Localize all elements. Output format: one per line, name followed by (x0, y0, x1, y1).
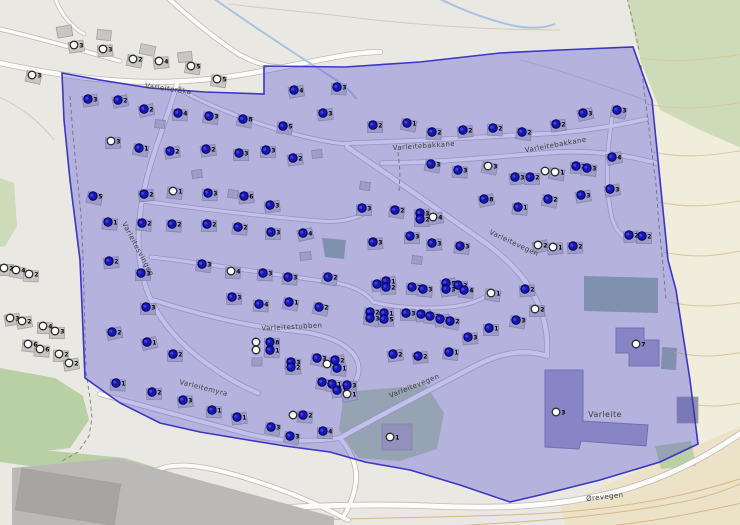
address-marker-selected[interactable]: 2 (638, 232, 652, 241)
marker-number: 4 (308, 230, 312, 237)
address-marker-selected[interactable]: 2 (552, 120, 566, 129)
marker-dot-highlight (136, 146, 139, 149)
address-marker-selected[interactable]: 8 (480, 195, 494, 204)
marker-dot-highlight (314, 356, 317, 359)
address-marker-selected[interactable]: 4 (460, 286, 474, 295)
marker-ring[interactable] (323, 360, 331, 368)
address-marker-selected[interactable]: 6 (240, 192, 254, 201)
address-marker[interactable]: 7 (632, 340, 645, 348)
address-marker-selected[interactable]: 3 (267, 423, 281, 432)
address-marker-selected[interactable]: 1 (266, 346, 280, 355)
address-marker-selected[interactable]: 2 (114, 96, 128, 105)
marker-dot-highlight (167, 149, 170, 152)
address-marker-selected[interactable]: 4 (255, 300, 269, 309)
address-marker-selected[interactable]: 2 (105, 257, 119, 266)
address-marker[interactable]: 3 (552, 408, 565, 416)
address-marker[interactable]: 1 (343, 390, 356, 398)
address-marker[interactable] (252, 346, 260, 354)
marker-number: 2 (530, 286, 534, 293)
address-marker-selected[interactable]: 3 (406, 232, 420, 241)
marker-dot-highlight (290, 156, 293, 159)
marker-ring[interactable] (39, 322, 47, 330)
marker-number: 2 (175, 148, 179, 155)
marker-ring[interactable] (541, 167, 549, 175)
marker-dot-highlight (626, 233, 629, 236)
marker-number: 3 (378, 239, 382, 246)
marker-number: 2 (308, 412, 312, 419)
address-marker[interactable]: 2 (129, 55, 142, 63)
address-marker-selected[interactable]: 2 (324, 273, 338, 282)
marker-ring[interactable] (534, 241, 542, 249)
marker-dot-highlight (236, 151, 239, 154)
address-marker-selected[interactable]: 3 (259, 269, 273, 278)
marker-number: 1 (523, 204, 527, 211)
address-marker-selected[interactable]: 2 (416, 215, 430, 224)
marker-number: 3 (615, 186, 619, 193)
marker-dot-highlight (113, 381, 116, 384)
address-marker-selected[interactable]: 2 (289, 154, 303, 163)
address-marker-selected[interactable]: 2 (234, 223, 248, 232)
marker-number: 2 (543, 242, 547, 249)
marker-ring[interactable] (252, 338, 260, 346)
marker-ring[interactable] (531, 305, 539, 313)
marker-dot-highlight (515, 205, 518, 208)
address-marker[interactable]: 4 (155, 57, 168, 65)
marker-dot-highlight (639, 234, 642, 237)
marker-ring[interactable] (28, 71, 36, 79)
marker-number: 7 (641, 341, 645, 348)
marker-ring[interactable] (632, 340, 640, 348)
address-marker-selected[interactable]: 3 (512, 316, 526, 325)
marker-dot-highlight (320, 429, 323, 432)
marker-ring[interactable] (70, 41, 78, 49)
marker-dot-highlight (427, 314, 430, 317)
marker-dot-highlight (287, 434, 290, 437)
address-marker-selected[interactable]: 3 (266, 201, 280, 210)
marker-number: 2 (455, 318, 459, 325)
address-marker-selected[interactable]: 2 (148, 388, 162, 397)
marker-dot-highlight (332, 358, 335, 361)
address-marker-selected[interactable]: 3 (402, 309, 416, 318)
marker-ring[interactable] (6, 314, 14, 322)
marker-number: 3 (37, 72, 41, 79)
address-marker-selected[interactable]: 3 (427, 160, 441, 169)
marker-ring[interactable] (487, 289, 495, 297)
address-marker[interactable]: 3 (99, 45, 112, 53)
marker-number: 3 (588, 110, 592, 117)
address-marker[interactable]: 3 (484, 162, 497, 170)
marker-dot-highlight (241, 194, 244, 197)
address-marker[interactable]: 3 (70, 41, 83, 49)
address-marker-selected[interactable]: 3 (228, 293, 242, 302)
marker-dot-highlight (580, 111, 583, 114)
address-marker-selected[interactable]: 2 (446, 317, 460, 326)
address-marker-selected[interactable]: 2 (108, 328, 122, 337)
marker-number: 3 (275, 202, 279, 209)
address-marker-selected[interactable]: 1 (333, 364, 347, 373)
marker-number: 4 (164, 58, 168, 65)
address-marker[interactable]: 2 (534, 241, 547, 249)
address-marker-selected[interactable]: 2 (166, 147, 180, 156)
marker-dot-highlight (429, 241, 432, 244)
marker-ring[interactable] (51, 327, 59, 335)
address-marker-selected[interactable]: 1 (104, 218, 118, 227)
marker-ring[interactable] (213, 75, 221, 83)
marker-dot-highlight (285, 275, 288, 278)
address-marker[interactable]: 4 (39, 322, 52, 330)
marker-number: 3 (244, 150, 248, 157)
address-marker-selected[interactable]: 8 (266, 338, 280, 347)
marker-dot-highlight (407, 234, 410, 237)
marker-number: 3 (521, 317, 525, 324)
address-marker-selected[interactable]: 3 (284, 273, 298, 282)
marker-number: 3 (473, 334, 477, 341)
address-marker-selected[interactable]: 5 (380, 315, 394, 324)
marker-number: 3 (586, 192, 590, 199)
marker-number: 3 (60, 328, 64, 335)
marker-dot-highlight (286, 300, 289, 303)
address-marker-selected[interactable]: 4 (608, 153, 622, 162)
address-marker-selected[interactable]: 3 (319, 109, 333, 118)
marker-dot-highlight (141, 192, 144, 195)
marker-number: 3 (295, 433, 299, 440)
marker-ring[interactable] (155, 57, 163, 65)
address-marker-selected[interactable]: 2 (391, 206, 405, 215)
marker-number: 1 (342, 365, 346, 372)
marker-number: 1 (113, 219, 117, 226)
address-marker[interactable]: 4 (429, 213, 442, 221)
marker-number: 2 (117, 329, 121, 336)
marker-number: 3 (293, 274, 297, 281)
address-marker-selected[interactable]: 8 (239, 115, 253, 124)
address-marker-selected[interactable]: 2 (625, 231, 639, 240)
address-marker-selected[interactable]: 2 (315, 303, 329, 312)
marker-dot-highlight (447, 319, 450, 322)
marker-dot-highlight (607, 187, 610, 190)
address-marker-selected[interactable]: 1 (112, 379, 126, 388)
address-marker-selected[interactable]: 3 (358, 204, 372, 213)
address-marker-selected[interactable]: 3 (84, 95, 98, 104)
marker-dot-highlight (267, 340, 270, 343)
address-marker[interactable]: 3 (28, 71, 41, 79)
address-marker-selected[interactable]: 3 (179, 396, 193, 405)
marker-number: 1 (454, 349, 458, 356)
marker-number: 1 (412, 120, 416, 127)
marker-dot-highlight (90, 194, 93, 197)
marker-ring[interactable] (386, 433, 394, 441)
address-marker[interactable]: 1 (549, 243, 562, 251)
marker-ring[interactable] (129, 55, 137, 63)
marker-dot-highlight (465, 335, 468, 338)
marker-number: 3 (214, 113, 218, 120)
address-marker[interactable]: 2 (65, 359, 78, 367)
marker-dot-highlight (374, 282, 377, 285)
marker-number: 4 (438, 214, 442, 221)
marker-dot-highlight (204, 222, 207, 225)
marker-ring[interactable] (36, 345, 44, 353)
marker-dot-highlight (288, 360, 291, 363)
marker-number: 2 (177, 221, 181, 228)
marker-ring[interactable] (99, 45, 107, 53)
address-marker[interactable]: 1 (169, 187, 182, 195)
marker-dot-highlight (383, 279, 386, 282)
address-marker-selected[interactable]: 2 (203, 220, 217, 229)
address-marker-selected[interactable]: 2 (287, 363, 301, 372)
address-marker[interactable]: 5 (213, 75, 226, 83)
address-marker-selected[interactable]: 2 (202, 145, 216, 154)
address-marker-selected[interactable]: 4 (174, 109, 188, 118)
marker-number: 1 (494, 325, 498, 332)
address-marker[interactable]: 6 (24, 340, 37, 348)
marker-number: 2 (296, 364, 300, 371)
address-marker-selected[interactable]: 3 (579, 109, 593, 118)
marker-dot-highlight (240, 117, 243, 120)
marker-number: 3 (367, 205, 371, 212)
marker-dot-highlight (457, 244, 460, 247)
marker-dot-highlight (437, 317, 440, 320)
address-marker-selected[interactable]: 3 (464, 333, 478, 342)
address-marker-selected[interactable]: 3 (583, 164, 597, 173)
address-marker-selected[interactable]: 2 (414, 352, 428, 361)
marker-dot-highlight (139, 221, 142, 224)
marker-dot-highlight (367, 316, 370, 319)
address-marker-selected[interactable]: 1 (233, 413, 247, 422)
address-marker-selected[interactable]: 3 (442, 285, 456, 294)
address-marker[interactable]: 3 (6, 314, 19, 322)
marker-number: 1 (242, 414, 246, 421)
address-marker-selected[interactable]: 4 (319, 427, 333, 436)
address-marker-selected[interactable]: 2 (428, 128, 442, 137)
address-marker-selected[interactable]: 3 (205, 112, 219, 121)
marker-number: 2 (437, 129, 441, 136)
address-marker-selected[interactable]: 2 (299, 411, 313, 420)
address-marker-selected[interactable]: 3 (267, 228, 281, 237)
address-marker[interactable]: 2 (55, 350, 68, 358)
marker-number: 3 (437, 240, 441, 247)
marker-dot-highlight (143, 305, 146, 308)
marker-ring[interactable] (18, 317, 26, 325)
marker-number: 2 (298, 155, 302, 162)
marker-dot-highlight (205, 191, 208, 194)
marker-ring[interactable] (24, 340, 32, 348)
address-marker-selected[interactable]: 2 (518, 128, 532, 137)
marker-ring[interactable] (0, 264, 8, 272)
marker-dot-highlight (512, 175, 515, 178)
address-marker-selected[interactable]: 2 (140, 190, 154, 199)
address-marker-selected[interactable]: 3 (204, 189, 218, 198)
address-marker-selected[interactable]: 2 (521, 285, 535, 294)
address-marker-selected[interactable]: 1 (135, 144, 149, 153)
address-marker-selected[interactable]: 3 (606, 185, 620, 194)
marker-dot-highlight (460, 128, 463, 131)
address-marker-selected[interactable]: 1 (445, 348, 459, 357)
marker-dot-highlight (446, 350, 449, 353)
marker-dot-highlight (519, 130, 522, 133)
building (56, 25, 73, 38)
marker-number: 1 (558, 244, 562, 251)
marker-number: 2 (211, 146, 215, 153)
marker-dot-highlight (553, 122, 556, 125)
marker-ring[interactable] (55, 350, 63, 358)
marker-ring[interactable] (429, 213, 437, 221)
marker-ring[interactable] (107, 137, 115, 145)
address-marker-selected[interactable]: 2 (168, 220, 182, 229)
marker-ring[interactable] (227, 267, 235, 275)
marker-dot-highlight (209, 408, 212, 411)
marker-dot-highlight (418, 312, 421, 315)
marker-number: 6 (45, 346, 49, 353)
address-marker-selected[interactable]: 1 (208, 406, 222, 415)
address-marker-selected[interactable]: 3 (286, 432, 300, 441)
marker-dot-highlight (455, 168, 458, 171)
marker-ring[interactable] (551, 168, 559, 176)
marker-number: 2 (324, 304, 328, 311)
marker-number: 2 (157, 389, 161, 396)
address-marker-selected[interactable]: 2 (459, 126, 473, 135)
address-marker-selected[interactable]: 3 (419, 285, 433, 294)
marker-ring[interactable] (12, 266, 20, 274)
marker-ring[interactable] (549, 243, 557, 251)
address-marker[interactable]: 2 (18, 317, 31, 325)
address-marker-selected[interactable]: 5 (89, 192, 103, 201)
marker-dot-highlight (420, 287, 423, 290)
address-marker-selected[interactable]: 1 (143, 338, 157, 347)
marker-ring[interactable] (289, 411, 297, 419)
address-marker[interactable]: 5 (187, 62, 200, 70)
marker-dot-highlight (256, 302, 259, 305)
address-marker[interactable] (252, 338, 260, 346)
address-marker-selected[interactable]: 2 (169, 350, 183, 359)
address-marker-selected[interactable]: 2 (369, 121, 383, 130)
marker-dot-highlight (260, 271, 263, 274)
address-marker-selected[interactable]: 3 (577, 191, 591, 200)
marker-dot-highlight (300, 231, 303, 234)
marker-number: 8 (489, 196, 493, 203)
address-marker-selected[interactable]: 4 (299, 229, 313, 238)
marker-number: 2 (527, 129, 531, 136)
marker-ring[interactable] (169, 187, 177, 195)
address-marker-selected[interactable]: 3 (428, 239, 442, 248)
address-marker-selected[interactable]: 2 (569, 242, 583, 251)
address-marker-selected[interactable]: 4 (290, 86, 304, 95)
address-marker-selected[interactable]: 3 (454, 166, 468, 175)
marker-dot-highlight (461, 288, 464, 291)
marker-number: 5 (389, 316, 393, 323)
address-marker-selected[interactable]: 3 (142, 303, 156, 312)
marker-dot-highlight (381, 317, 384, 320)
address-marker-selected[interactable]: 3 (456, 242, 470, 251)
address-marker[interactable]: 1 (551, 168, 564, 176)
marker-number: 3 (592, 165, 596, 172)
marker-number: 2 (468, 127, 472, 134)
marker-dot-highlight (203, 147, 206, 150)
marker-dot-highlight (169, 222, 172, 225)
marker-number: 3 (276, 229, 280, 236)
address-marker-selected[interactable]: 1 (403, 119, 417, 128)
address-marker[interactable] (323, 360, 331, 368)
address-marker-selected[interactable]: 1 (485, 324, 499, 333)
address-marker-selected[interactable]: 3 (262, 146, 276, 155)
marker-dot-highlight (522, 287, 525, 290)
marker-ring[interactable] (65, 359, 73, 367)
address-marker-selected[interactable]: 2 (489, 124, 503, 133)
neighborhood-map[interactable]: VarleiteråkaVarleitebakkaneVarleitebakka… (0, 0, 740, 525)
marker-ring[interactable] (187, 62, 195, 70)
marker-number: 2 (34, 271, 38, 278)
address-marker[interactable]: 1 (487, 289, 500, 297)
address-marker[interactable]: 3 (51, 327, 64, 335)
address-marker-selected[interactable]: 1 (285, 298, 299, 307)
address-marker-selected[interactable]: 3 (137, 269, 151, 278)
marker-number: 2 (553, 196, 557, 203)
address-marker-selected[interactable]: 2 (140, 105, 154, 114)
marker-number: 2 (149, 106, 153, 113)
marker-number: 5 (288, 123, 292, 130)
marker-number: 1 (294, 299, 298, 306)
marker-dot-highlight (320, 111, 323, 114)
marker-number: 2 (64, 351, 68, 358)
marker-ring[interactable] (552, 408, 560, 416)
address-marker-selected[interactable]: 1 (514, 203, 528, 212)
address-marker[interactable]: 4 (227, 267, 240, 275)
address-marker-selected[interactable]: 2 (544, 195, 558, 204)
marker-dot-highlight (383, 285, 386, 288)
address-marker-selected[interactable]: 2 (331, 356, 345, 365)
address-marker-selected[interactable]: 2 (138, 219, 152, 228)
address-marker[interactable] (541, 167, 549, 175)
address-marker[interactable]: 4 (12, 266, 25, 274)
marker-dot-highlight (392, 208, 395, 211)
marker-dot-highlight (578, 193, 581, 196)
address-marker[interactable]: 2 (25, 270, 38, 278)
marker-ring[interactable] (484, 162, 492, 170)
marker-number: 2 (149, 191, 153, 198)
marker-ring[interactable] (25, 270, 33, 278)
address-marker-selected[interactable]: 3 (366, 314, 380, 323)
address-marker-selected[interactable]: 5 (279, 122, 293, 131)
marker-ring[interactable] (343, 390, 351, 398)
address-marker-selected[interactable]: 2 (389, 350, 403, 359)
address-marker-selected[interactable]: 2 (526, 173, 540, 182)
address-marker-selected[interactable]: 3 (235, 149, 249, 158)
address-marker[interactable]: 2 (0, 264, 13, 272)
address-marker[interactable]: 6 (36, 345, 49, 353)
marker-dot-highlight (513, 318, 516, 321)
map-viewport[interactable]: VarleiteråkaVarleitebakkaneVarleitebakka… (0, 0, 740, 525)
address-marker-selected[interactable]: 2 (382, 283, 396, 292)
address-marker-selected[interactable]: 3 (198, 260, 212, 269)
marker-ring[interactable] (252, 346, 260, 354)
address-marker[interactable]: 3 (107, 137, 120, 145)
address-marker[interactable]: 1 (386, 433, 399, 441)
marker-number: 4 (469, 287, 473, 294)
address-marker-selected[interactable]: 3 (613, 106, 627, 115)
marker-number: 3 (561, 409, 565, 416)
marker-number: 2 (647, 233, 651, 240)
address-marker-selected[interactable]: 3 (333, 83, 347, 92)
marker-dot-highlight (609, 155, 612, 158)
address-marker-selected[interactable]: 3 (369, 238, 383, 247)
marker-number: 3 (493, 163, 497, 170)
address-marker[interactable]: 2 (531, 305, 544, 313)
marker-dot-highlight (486, 326, 489, 329)
marker-number: 3 (237, 294, 241, 301)
marker-number: 8 (275, 339, 279, 346)
address-marker-selected[interactable]: 3 (511, 173, 525, 182)
street-label: Varleite (588, 410, 622, 419)
marker-number: 3 (352, 382, 356, 389)
marker-dot-highlight (267, 203, 270, 206)
